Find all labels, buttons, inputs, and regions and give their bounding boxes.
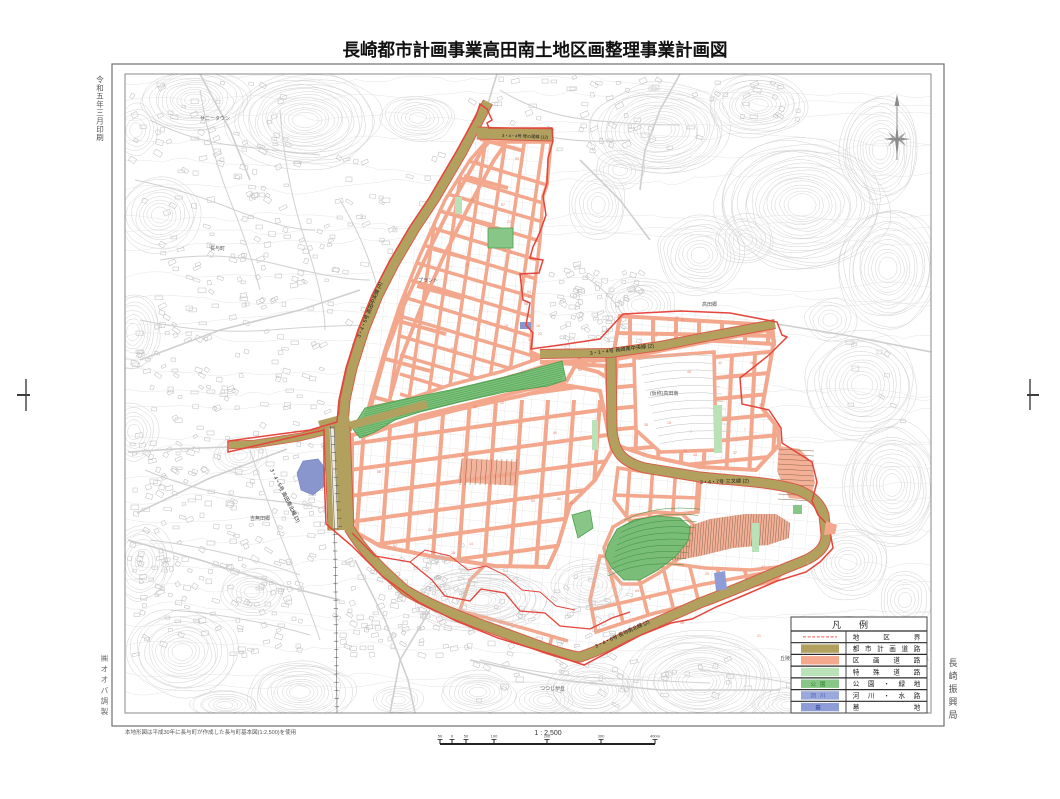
svg-text:凡例: 凡例: [832, 619, 886, 630]
svg-text:都: 都: [853, 645, 860, 653]
svg-text:特: 特: [853, 667, 860, 676]
svg-text:区: 区: [883, 633, 890, 641]
svg-text:42: 42: [718, 361, 722, 365]
svg-text:21: 21: [757, 634, 761, 638]
svg-text:16: 16: [536, 324, 540, 328]
svg-text:8: 8: [478, 328, 480, 332]
svg-text:園: 園: [868, 680, 875, 688]
svg-text:22: 22: [500, 401, 504, 405]
svg-text:50: 50: [438, 734, 443, 739]
svg-text:7: 7: [690, 430, 692, 434]
svg-text:7: 7: [744, 428, 746, 432]
svg-text:3: 3: [528, 338, 530, 342]
svg-text:51: 51: [528, 295, 532, 299]
svg-text:5: 5: [655, 334, 657, 338]
svg-text:50: 50: [557, 497, 561, 501]
svg-text:40: 40: [635, 589, 639, 593]
svg-text:25: 25: [705, 572, 709, 576]
svg-text:崎: 崎: [948, 670, 957, 681]
svg-text:路: 路: [914, 667, 921, 676]
svg-text:43: 43: [693, 453, 697, 457]
svg-text:39: 39: [472, 122, 476, 126]
svg-text:高田郷: 高田郷: [702, 301, 717, 308]
svg-text:300: 300: [598, 734, 605, 739]
svg-text:振: 振: [948, 683, 957, 694]
svg-text:地: 地: [914, 703, 921, 712]
svg-text:48: 48: [677, 606, 681, 610]
svg-text:6: 6: [649, 597, 651, 601]
svg-text:47: 47: [761, 565, 765, 569]
svg-text:オ: オ: [101, 675, 109, 684]
svg-text:48: 48: [470, 198, 474, 202]
svg-text:38: 38: [644, 423, 648, 427]
svg-text:道: 道: [893, 656, 900, 665]
svg-text:興: 興: [948, 697, 957, 707]
svg-text:画: 画: [889, 645, 896, 653]
svg-text:バ: バ: [101, 686, 109, 695]
svg-text:道: 道: [893, 667, 900, 676]
svg-text:吉無田郷: 吉無田郷: [250, 515, 270, 522]
svg-text:11: 11: [681, 318, 685, 322]
svg-text:墓: 墓: [853, 703, 860, 712]
svg-text:緑: 緑: [899, 679, 906, 688]
svg-text:23: 23: [507, 220, 511, 224]
svg-text:18: 18: [451, 551, 455, 555]
svg-text:34: 34: [489, 226, 493, 230]
svg-text:53: 53: [462, 453, 466, 457]
svg-text:58: 58: [377, 470, 381, 474]
svg-text:38: 38: [675, 316, 679, 320]
svg-text:25: 25: [683, 449, 687, 453]
svg-text:46: 46: [612, 421, 616, 425]
svg-text:50: 50: [553, 431, 557, 435]
svg-text:公園: 公園: [810, 681, 829, 688]
svg-text:地: 地: [914, 679, 921, 688]
svg-text:墓: 墓: [815, 703, 825, 711]
svg-text:殊: 殊: [873, 667, 880, 676]
svg-text:・: ・: [883, 681, 890, 688]
svg-text:刷: 刷: [96, 133, 104, 142]
svg-text:23: 23: [428, 528, 432, 532]
svg-text:39: 39: [450, 347, 454, 351]
svg-text:400m: 400m: [650, 734, 661, 739]
svg-text:調: 調: [101, 695, 109, 705]
svg-text:50: 50: [531, 499, 535, 503]
svg-text:26: 26: [750, 361, 754, 365]
svg-text:27: 27: [465, 263, 469, 267]
svg-text:32: 32: [654, 625, 658, 629]
svg-text:本地形図は平成30年に長与町が作成した長与町基本図(1:2,: 本地形図は平成30年に長与町が作成した長与町基本図(1:2,500)を使用: [125, 728, 296, 736]
svg-text:52: 52: [578, 368, 582, 372]
svg-text:製: 製: [101, 706, 109, 716]
svg-text:長: 長: [948, 658, 957, 668]
svg-text:サニータウン: サニータウン: [200, 115, 230, 122]
svg-text:4: 4: [510, 251, 512, 255]
svg-text:・: ・: [883, 693, 890, 700]
svg-text:局: 局: [948, 710, 957, 720]
svg-text:路: 路: [914, 656, 921, 665]
svg-text:42: 42: [673, 330, 677, 334]
svg-text:37: 37: [733, 451, 737, 455]
svg-text:58: 58: [524, 302, 528, 306]
svg-text:52: 52: [393, 544, 397, 548]
svg-text:50: 50: [464, 734, 469, 739]
svg-text:48: 48: [569, 501, 573, 505]
svg-text:川: 川: [868, 693, 875, 700]
svg-text:界: 界: [914, 633, 921, 641]
svg-text:公: 公: [853, 681, 860, 688]
svg-text:54: 54: [527, 290, 531, 294]
svg-text:32: 32: [779, 448, 783, 452]
svg-text:長与町: 長与町: [210, 245, 225, 252]
svg-text:長崎都市計画事業高田南土地区画整理事業計画図: 長崎都市計画事業高田南土地区画整理事業計画図: [343, 40, 728, 60]
svg-text:路: 路: [914, 644, 921, 653]
svg-text:河: 河: [853, 692, 860, 700]
svg-text:地: 地: [853, 632, 860, 641]
svg-text:49: 49: [687, 370, 691, 374]
svg-text:58: 58: [680, 621, 684, 625]
svg-text:15: 15: [667, 421, 671, 425]
svg-text:35: 35: [708, 338, 712, 342]
svg-text:11: 11: [503, 249, 507, 253]
svg-text:57: 57: [501, 203, 505, 207]
svg-text:路: 路: [914, 691, 921, 700]
svg-text:水: 水: [899, 691, 906, 700]
svg-text:河川: 河川: [810, 692, 829, 700]
svg-text:つつじが丘: つつじが丘: [540, 685, 565, 692]
svg-text:22: 22: [538, 332, 542, 336]
svg-text:14: 14: [469, 542, 473, 546]
svg-text:(仮称)高田南: (仮称)高田南: [650, 390, 678, 397]
svg-text:100: 100: [491, 734, 498, 739]
svg-text:市: 市: [865, 644, 872, 653]
svg-text:画: 画: [873, 657, 880, 665]
svg-text:35: 35: [476, 160, 480, 164]
svg-text:道: 道: [902, 644, 909, 653]
svg-text:55: 55: [515, 157, 519, 161]
svg-text:プラント: プラント: [418, 278, 438, 284]
svg-text:区: 区: [853, 657, 860, 665]
svg-text:30: 30: [473, 405, 477, 409]
svg-text:18: 18: [504, 324, 508, 328]
svg-text:オ: オ: [101, 665, 109, 674]
svg-text:計: 計: [877, 644, 884, 653]
svg-text:26: 26: [759, 403, 763, 407]
svg-text:㈱: ㈱: [101, 653, 109, 663]
svg-text:200: 200: [544, 734, 551, 739]
